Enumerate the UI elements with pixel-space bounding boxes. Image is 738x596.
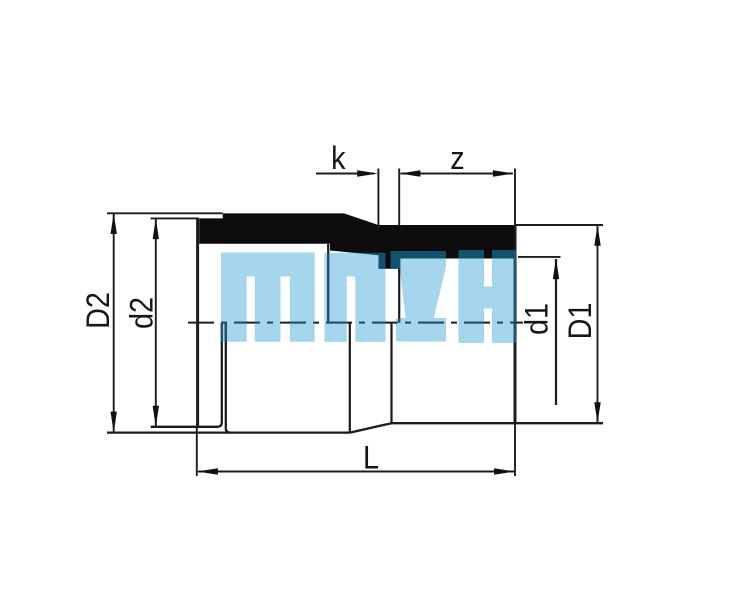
svg-text:L: L	[363, 440, 379, 476]
svg-text:D2: D2	[81, 292, 117, 329]
svg-text:k: k	[331, 141, 346, 177]
svg-text:d1: d1	[519, 303, 555, 335]
svg-text:z: z	[450, 141, 464, 177]
svg-text:d2: d2	[124, 297, 160, 329]
svg-text:D1: D1	[563, 303, 599, 340]
